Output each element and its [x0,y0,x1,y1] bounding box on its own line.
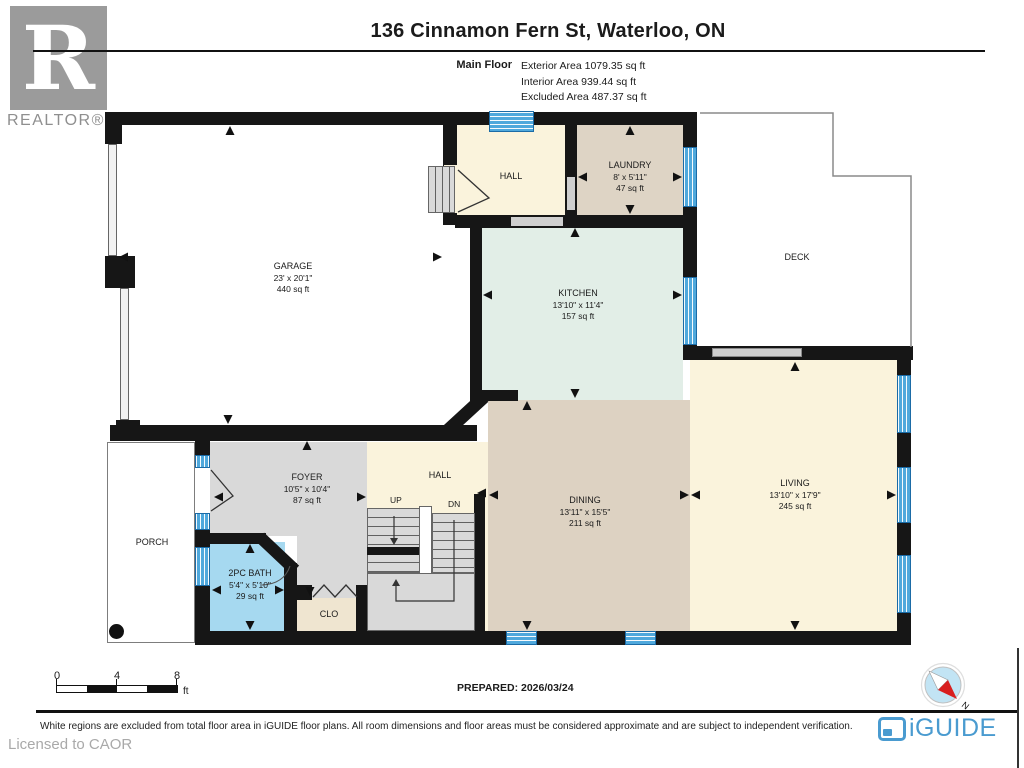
scale-unit: ft [183,686,189,697]
interior-area: Interior Area 939.44 sq ft [521,76,636,88]
iguide-logo-text: iGUIDE [909,714,997,743]
stairs-rail [419,506,432,576]
realtor-logo-word: REALTOR® [7,112,105,130]
laundry-window [683,147,697,207]
wall [105,112,122,144]
exterior-area: Exterior Area 1079.35 sq ft [521,60,645,72]
bath-window [195,547,210,586]
room-living-label: LIVING 13'10" x 17'9" 245 sq ft [769,478,820,512]
garage-door-1 [108,144,117,256]
excluded-area: Excluded Area 487.37 sq ft [521,91,647,103]
realtor-logo-icon: R [10,6,107,110]
room-porch-label: PORCH [136,537,169,549]
wall [455,215,697,228]
iguide-logo: iGUIDE [878,714,997,743]
living-window-2 [897,467,911,523]
living-window-3 [897,555,911,613]
room-deck-label: DECK [784,252,809,264]
deck-outline [700,113,911,347]
stairs-up-label: UP [390,495,402,505]
floor-plan-page: R REALTOR® 136 Cinnamon Fern St, Waterlo… [0,0,1024,768]
room-closet-label: CLO [320,609,339,621]
room-bath-label: 2PC BATH 5'4" x 5'10" 29 sq ft [228,568,271,602]
wall [105,112,697,125]
stairs-up-run [367,508,420,573]
laundry-door-sill [567,177,575,210]
living-window-1 [897,375,911,433]
garage-hall-steps [428,166,455,213]
stairs-break-bar [367,547,419,555]
entry-door-steps-window [489,111,534,132]
footer-divider [36,710,1018,713]
realtor-logo-letter: R [22,14,95,102]
room-foyer-label: FOYER 10'5" x 10'4" 87 sq ft [284,472,331,506]
scale-tick-0: 0 [54,670,60,682]
foyer-window-2 [195,513,210,530]
front-door-opening [195,468,210,513]
room-kitchen-label: KITCHEN 13'10" x 11'4" 157 sq ft [553,288,604,322]
kitchen-window [683,277,697,345]
room-hall-mid-label: HALL [429,470,452,482]
prepared-date: PREPARED: 2026/03/24 [457,682,574,694]
stairs-down-run [432,513,475,573]
wall [110,425,477,441]
scale-tick-8: 8 [174,670,180,682]
room-hall-top-label: HALL [500,171,523,183]
disclaimer-text: White regions are excluded from total fl… [40,721,853,732]
room-garage-label: GARAGE 23' x 20'1" 440 sq ft [274,261,313,295]
foyer-window-1 [195,455,210,468]
room-dining-label: DINING 13'11" x 15'5" 211 sq ft [560,495,611,529]
wall [470,227,482,400]
wall [105,256,135,288]
stairs-landing [367,573,475,631]
compass-icon: N [922,664,972,712]
dining-window-2 [625,631,656,645]
room-laundry-label: LAUNDRY 8' x 5'11" 47 sq ft [609,160,652,194]
wall [474,494,485,631]
scale-bar [56,685,178,693]
wall [296,585,312,600]
dining-window-1 [506,631,537,645]
kitchen-door-sill [511,217,563,226]
deck-sliding-door [712,348,802,357]
garage-door-2 [120,288,129,420]
page-title: 136 Cinnamon Fern St, Waterloo, ON [112,20,984,43]
iguide-logo-icon [878,717,906,741]
licensed-text: Licensed to CAOR [8,736,132,753]
porch-post-dot [109,624,124,639]
wall [470,390,518,401]
wall [195,631,911,645]
stairs-down-label: DN [448,499,460,509]
wall [210,533,266,544]
page-edge-line [1017,648,1019,768]
header-divider [33,50,985,52]
scale-tick-4: 4 [114,670,120,682]
wall [116,420,140,441]
floor-label: Main Floor [440,59,512,71]
